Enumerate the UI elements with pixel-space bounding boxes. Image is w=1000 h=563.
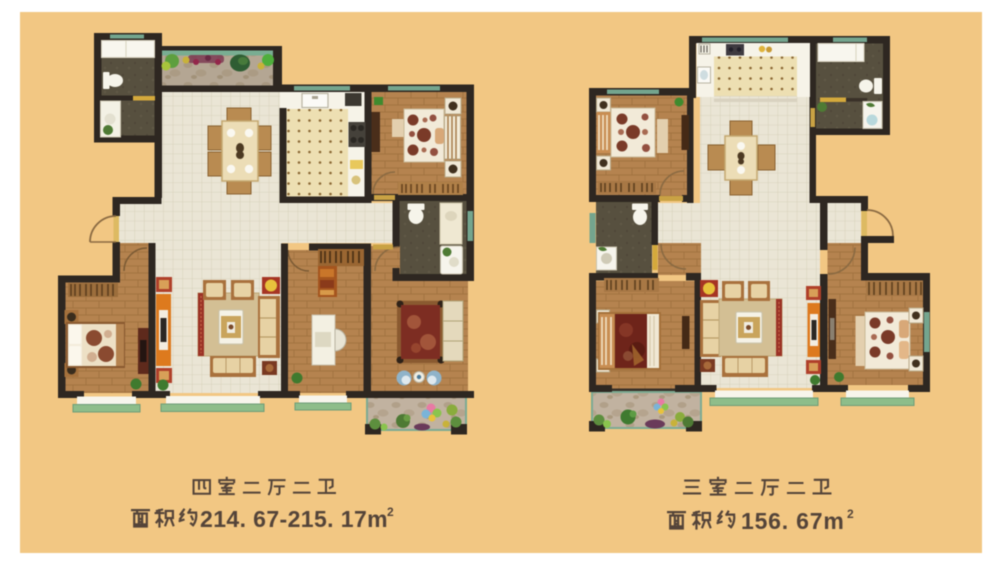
svg-text:2: 2 <box>847 507 854 521</box>
svg-text:214. 67-215. 17m: 214. 67-215. 17m <box>200 506 388 532</box>
svg-text:156. 67m: 156. 67m <box>741 508 845 534</box>
svg-text:2: 2 <box>387 505 394 519</box>
